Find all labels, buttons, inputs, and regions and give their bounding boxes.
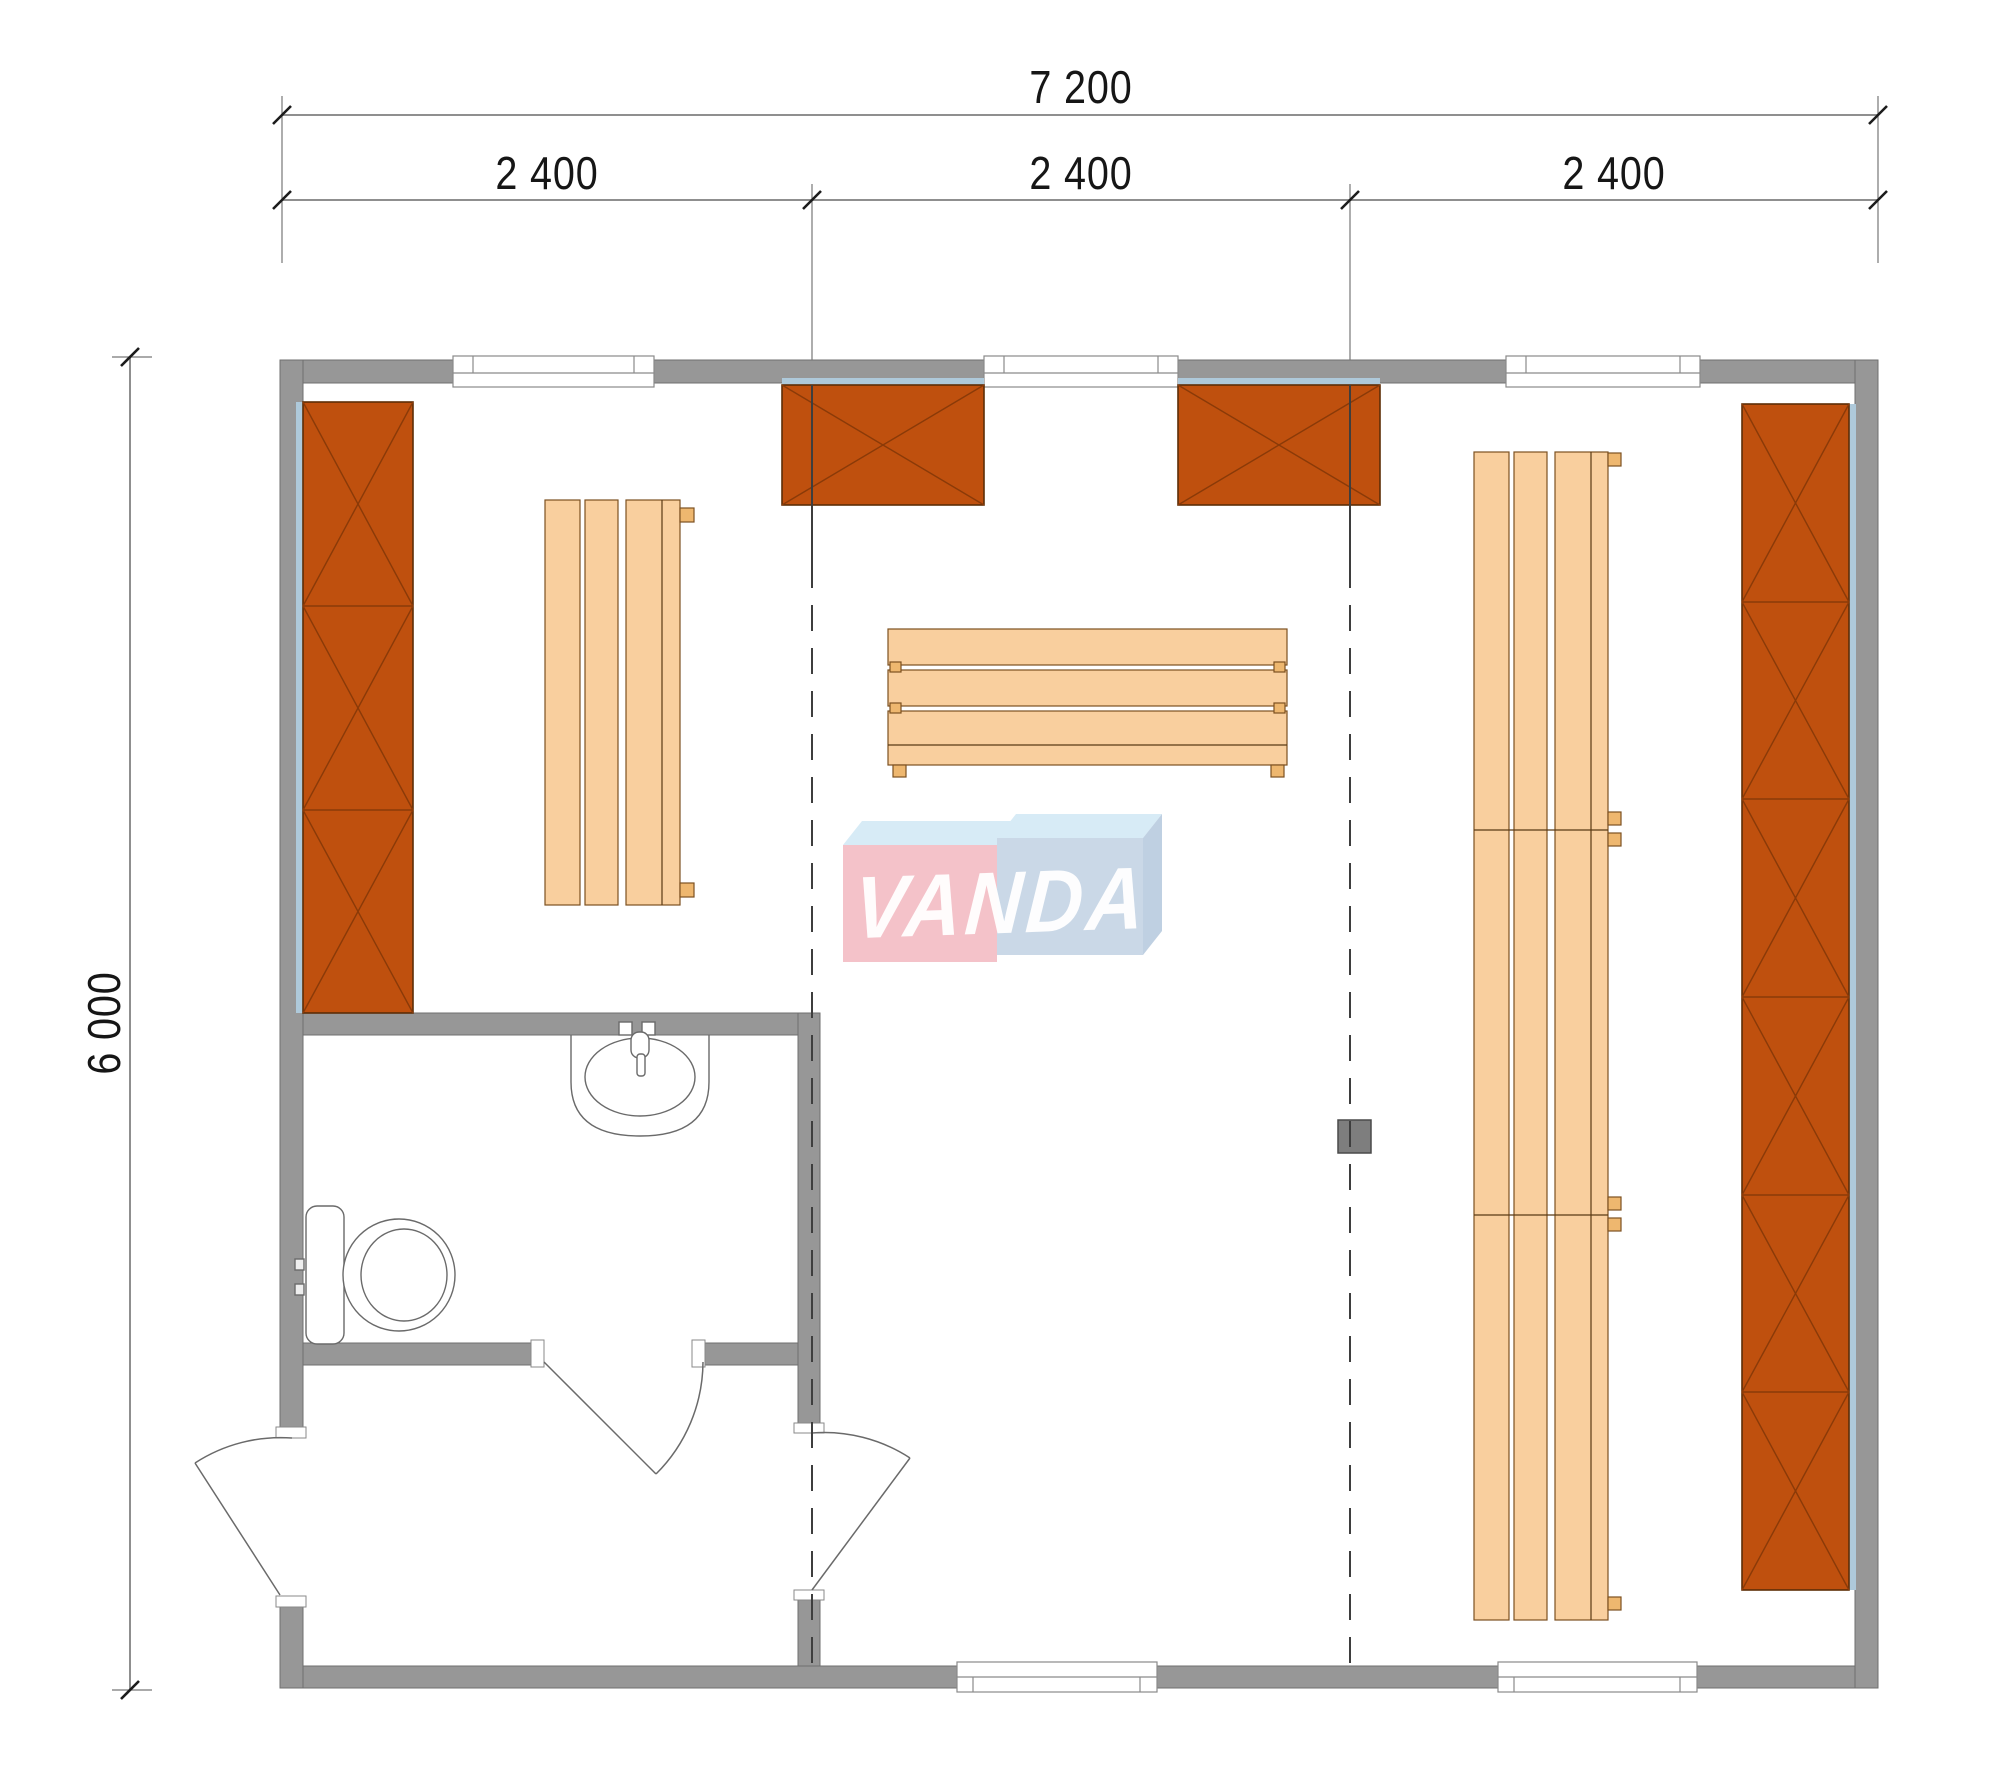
cabinet-right [1742,404,1849,1590]
door-jambs [276,1340,824,1607]
bathroom-wall-south-left [303,1343,531,1365]
dim-module-label-1: 2 400 [495,146,598,200]
dim-total-label: 7 200 [1029,60,1132,114]
hall-wall-stub [798,1600,820,1666]
door-jamb [276,1596,306,1607]
bathroom-wall-east [798,1013,820,1423]
door-jamb [794,1423,824,1433]
door-jamb [531,1340,544,1367]
bathroom-door-swing [544,1362,703,1474]
panel-back-right [1849,404,1856,1590]
window-icon-top-3 [1506,356,1700,387]
window-icon-bottom-2 [1498,1662,1697,1692]
wall-right [1855,360,1878,1688]
bench-right [1474,452,1621,1620]
heater-post [1338,1120,1371,1153]
bathroom-wall-south-right [703,1343,798,1365]
entry-door-swing [195,1438,292,1595]
hall-door-swing [812,1433,910,1590]
window-icon-top-2 [984,356,1178,387]
window-icon-bottom-1 [957,1662,1157,1692]
sink-icon [571,1022,709,1136]
wall-left-lower [280,1607,303,1688]
window-icon-top-1 [453,356,654,387]
bench-left [545,500,694,905]
walls [280,360,1878,1688]
floor-plan-drawing [0,0,2000,1786]
dim-module-label-2: 2 400 [1029,146,1132,200]
door-jamb [276,1427,306,1438]
toilet-icon [295,1206,455,1344]
dim-height-label: 6 000 [77,971,131,1074]
cabinet-back-panels [296,378,1856,1590]
dim-module-label-3: 2 400 [1562,146,1665,200]
module-lines [812,385,1350,1663]
door-jamb [794,1590,824,1600]
bathroom-wall-north [303,1013,820,1035]
cabinet-left [303,402,413,1013]
floor-plan: VANDA [0,0,2000,1786]
bench-middle [888,629,1287,777]
